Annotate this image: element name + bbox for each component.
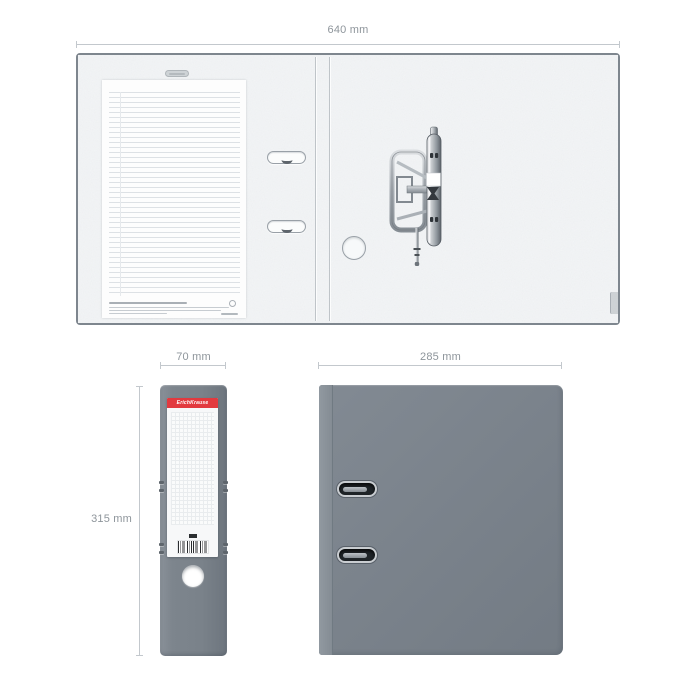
finger-slot <box>267 151 306 164</box>
product-dimensions-diagram: 640 mm <box>0 0 700 700</box>
brand-emboss-tab <box>165 70 189 77</box>
rivet <box>223 481 228 484</box>
open-width-dimension-label: 640 mm <box>76 24 620 36</box>
label-grid-area <box>171 412 214 525</box>
cover-edge-tab <box>610 292 618 314</box>
fine-print-line <box>221 313 238 315</box>
height-dimension-label: 315 mm <box>70 513 132 525</box>
mechanism-slot <box>337 481 377 497</box>
paper-insert <box>102 80 246 318</box>
rivet <box>159 481 164 484</box>
fine-print-line <box>109 307 229 308</box>
fine-print-line <box>109 313 167 314</box>
label-mini-mark <box>189 534 197 538</box>
barcode-icon <box>177 540 209 554</box>
lever-arch-mechanism-icon <box>387 118 449 270</box>
fine-print-line <box>109 310 221 311</box>
rivet <box>223 551 228 554</box>
rivet <box>223 543 228 546</box>
spine-label: ErichKrause <box>167 398 218 557</box>
ruled-lines <box>109 92 240 296</box>
spine-finger-hole <box>182 565 204 587</box>
slot-notch <box>281 225 292 233</box>
finger-slot <box>267 220 306 233</box>
rivet <box>159 551 164 554</box>
registered-mark-icon <box>229 300 236 307</box>
front-spine-strip <box>319 385 333 655</box>
spine-view: ErichKrause <box>160 385 227 656</box>
spine-fold-crease-right <box>329 57 330 321</box>
spine-fold-crease-left <box>315 57 316 321</box>
margin-line <box>120 92 121 296</box>
brand-emboss-inner <box>169 73 185 76</box>
rivet <box>159 489 164 492</box>
spine-width-dimension-line <box>160 365 226 366</box>
mechanism-slot <box>337 547 377 563</box>
rivet <box>159 543 164 546</box>
mechanism-prong <box>343 553 367 558</box>
spine-width-dimension-label: 70 mm <box>160 351 227 363</box>
open-binder-view <box>76 53 620 325</box>
rivet <box>223 489 228 492</box>
open-width-dimension-line <box>76 44 620 45</box>
brand-logo-band: ErichKrause <box>167 398 218 408</box>
front-cover-view <box>319 385 563 655</box>
finger-hole <box>342 236 366 260</box>
cover-width-dimension-label: 285 mm <box>318 351 563 363</box>
slot-notch <box>281 156 292 164</box>
mechanism-prong <box>343 487 367 492</box>
height-dimension-line <box>139 386 140 656</box>
cover-width-dimension-line <box>318 365 562 366</box>
fine-print-line <box>109 302 187 304</box>
